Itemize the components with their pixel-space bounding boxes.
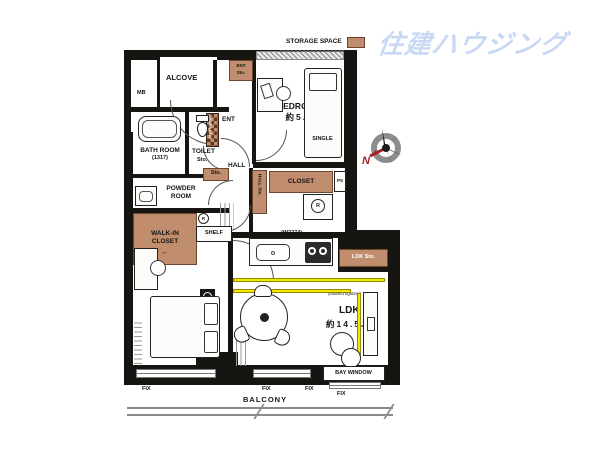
- bathroom-size-label: (1317): [138, 156, 182, 162]
- ent-storage-box: ENT Sto.: [229, 60, 253, 81]
- ldk-storage-box: LDK Sto.: [339, 249, 388, 267]
- hall-storage-box: HALL Sto.: [252, 170, 267, 214]
- window-fix-2: [253, 369, 311, 378]
- bathtub: [138, 116, 181, 142]
- window-bedroom1-top: [256, 51, 344, 60]
- legend-storage-space-label: STORAGE SPACE: [286, 39, 342, 46]
- closet-box: CLOSET: [269, 171, 333, 193]
- bathroom-label: BATH ROOM: [138, 148, 182, 155]
- floorplan-canvas: 住建ハウジング STORAGE SPACE ENT Sto.: [0, 0, 600, 450]
- compass-svg: N: [358, 124, 410, 176]
- ps-label: PS: [337, 179, 343, 184]
- powder-label1: POWDER: [152, 186, 210, 193]
- alcove-label: ALCOVE: [166, 74, 197, 82]
- compass-north-label: N: [362, 155, 371, 167]
- faucet-icon: [271, 251, 275, 255]
- tv-board: [363, 292, 378, 356]
- sto-label: Sto.: [204, 171, 228, 177]
- pillow: [204, 303, 218, 325]
- single-bed: SINGLE: [304, 68, 342, 158]
- desk-chair-back: [260, 83, 274, 99]
- mb-label: MB: [137, 91, 146, 97]
- hall-sto-label: HALL Sto.: [257, 174, 262, 196]
- closet-label: CLOSET: [270, 179, 332, 186]
- indirect-lighting-line: [233, 289, 351, 293]
- kitchen-stove: [305, 242, 331, 263]
- company-logo: 住建ハウジング: [375, 24, 569, 61]
- bay-window-label: BAY WINDOW: [324, 371, 383, 377]
- compass-icon: N: [358, 124, 410, 176]
- chair-bedroom2: [150, 260, 166, 276]
- fix-label-1: FIX: [142, 387, 151, 393]
- bay-window-box: BAY WINDOW: [323, 366, 385, 381]
- burner-icon: [308, 247, 316, 255]
- bathtub-inner: [142, 120, 177, 138]
- balcony-label: BALCONY: [243, 396, 287, 404]
- wall-bedroom1-bottom: [253, 162, 345, 168]
- circle-r-icon: R: [198, 213, 209, 224]
- tv-icon: [367, 317, 375, 331]
- shoes-box-label: SHOES BOX: [208, 115, 212, 139]
- fix-label-4: FIX: [337, 392, 346, 398]
- sofa-pouf: [341, 348, 361, 368]
- legend-storage-swatch: [347, 37, 365, 48]
- ldk-size-label: 約14.5J: [326, 320, 368, 329]
- powder-sink: [135, 186, 157, 206]
- ps-box: PS: [334, 171, 346, 192]
- toilet-sto-label: Sto.: [197, 158, 207, 164]
- hall-label: HALL: [228, 163, 245, 170]
- ent-sto-label2: Sto.: [230, 71, 252, 76]
- hatch-bedroom2-left: [134, 322, 142, 364]
- storage-space-marker: [280, 46, 344, 52]
- indirect-lighting-line: [233, 278, 385, 282]
- table-center: [260, 313, 269, 322]
- ent-sto-label1: ENT: [230, 64, 252, 69]
- kitchen-counter: [249, 238, 333, 266]
- shelf-label: SHELF: [197, 231, 231, 237]
- toilet-label: TOILET: [192, 149, 215, 156]
- kitchen-width-label: (W2274): [281, 231, 302, 237]
- fix-label-2: FIX: [262, 387, 271, 393]
- indirect-lighting-line-vertical: [357, 293, 361, 355]
- pillow: [204, 331, 218, 353]
- circle-r-icon: R: [311, 199, 325, 213]
- wic-label2: CLOSET: [134, 239, 196, 246]
- double-bed: [150, 296, 220, 358]
- burner-icon: [319, 247, 327, 255]
- dining-chair: [254, 285, 272, 297]
- shelf-box: SHELF: [196, 226, 232, 242]
- pillow: [309, 73, 337, 91]
- powder-sink-bowl: [139, 191, 153, 202]
- single-label: SINGLE: [305, 137, 340, 143]
- hall-storage-small-box: Sto.: [203, 168, 229, 181]
- chair-bedroom1: [276, 86, 291, 101]
- ent-label: ENT: [222, 117, 235, 124]
- window-bay: [329, 382, 381, 389]
- kitchen-sink: [256, 244, 290, 261]
- powder-label2: ROOM: [152, 194, 210, 201]
- window-fix-1: [136, 369, 216, 378]
- fix-label-3: FIX: [305, 387, 314, 393]
- wic-label1: WALK-IN: [134, 231, 196, 238]
- ldk-sto-label: LDK Sto.: [340, 255, 387, 261]
